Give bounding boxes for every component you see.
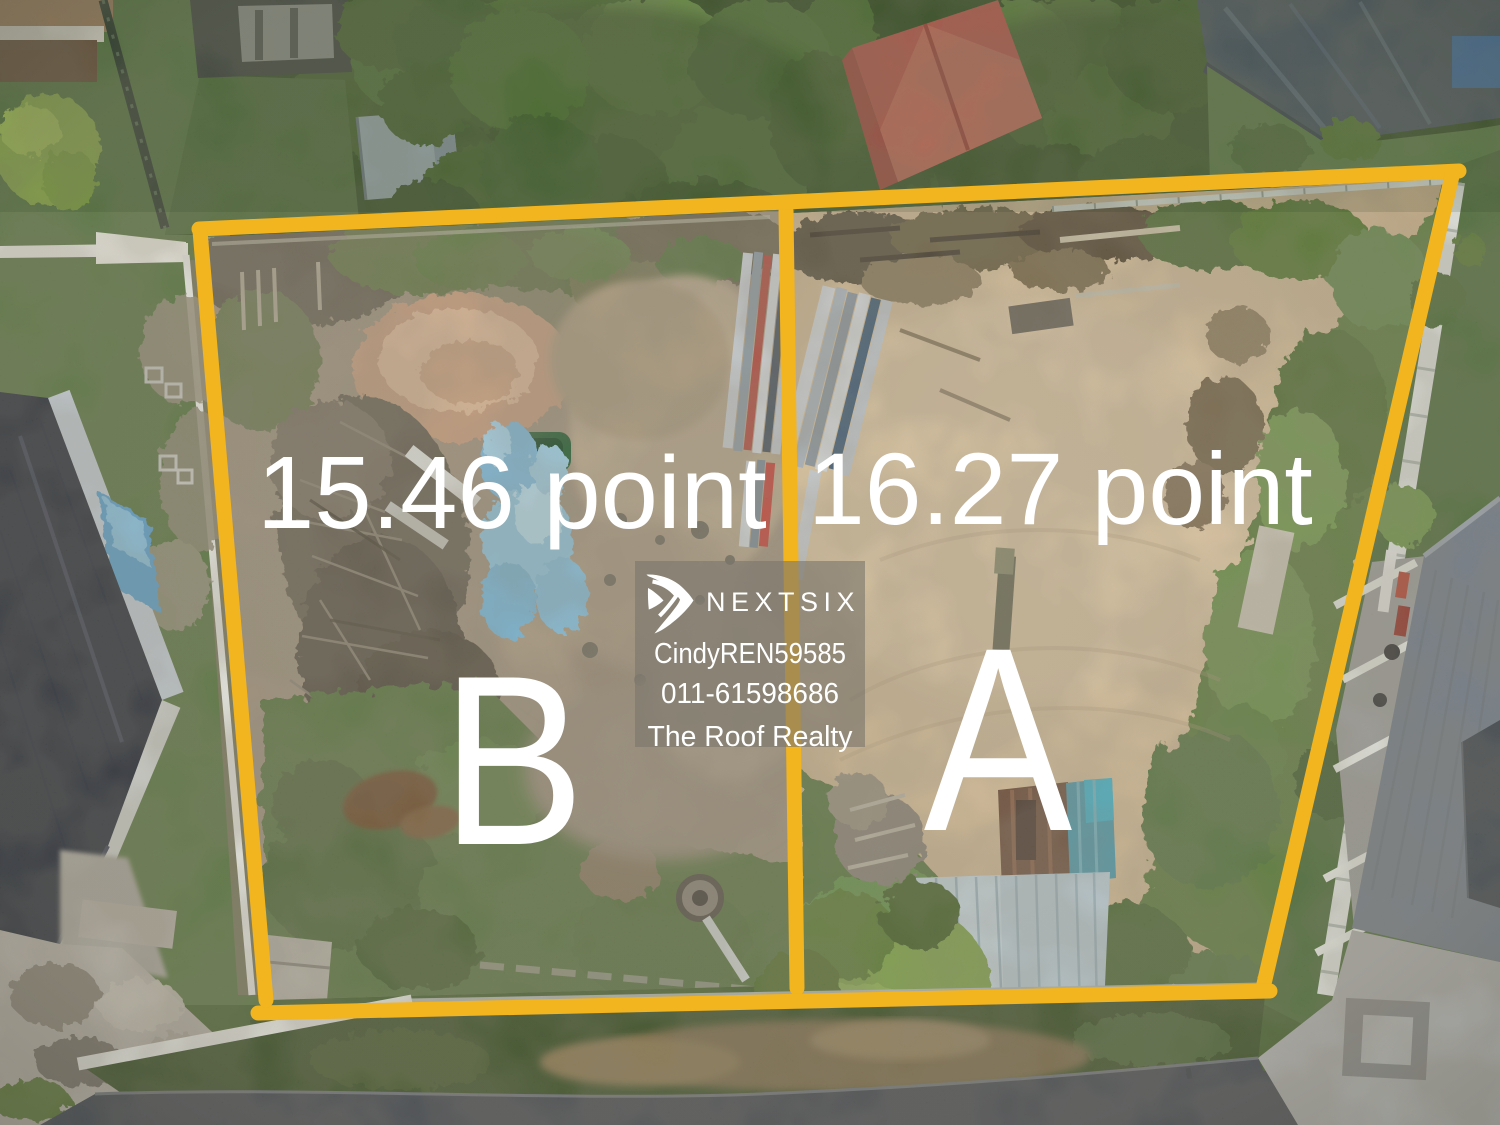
svg-text:B: B: [441, 625, 585, 895]
svg-text:15.46 point: 15.46 point: [257, 435, 767, 550]
svg-text:CindyREN59585: CindyREN59585: [654, 638, 846, 670]
svg-text:The Roof Realty: The Roof Realty: [648, 721, 853, 753]
svg-text:011-61598686: 011-61598686: [661, 678, 839, 710]
svg-text:NEXTSIX: NEXTSIX: [706, 587, 860, 617]
svg-text:A: A: [924, 593, 1073, 886]
svg-text:16.27 point: 16.27 point: [808, 432, 1313, 546]
